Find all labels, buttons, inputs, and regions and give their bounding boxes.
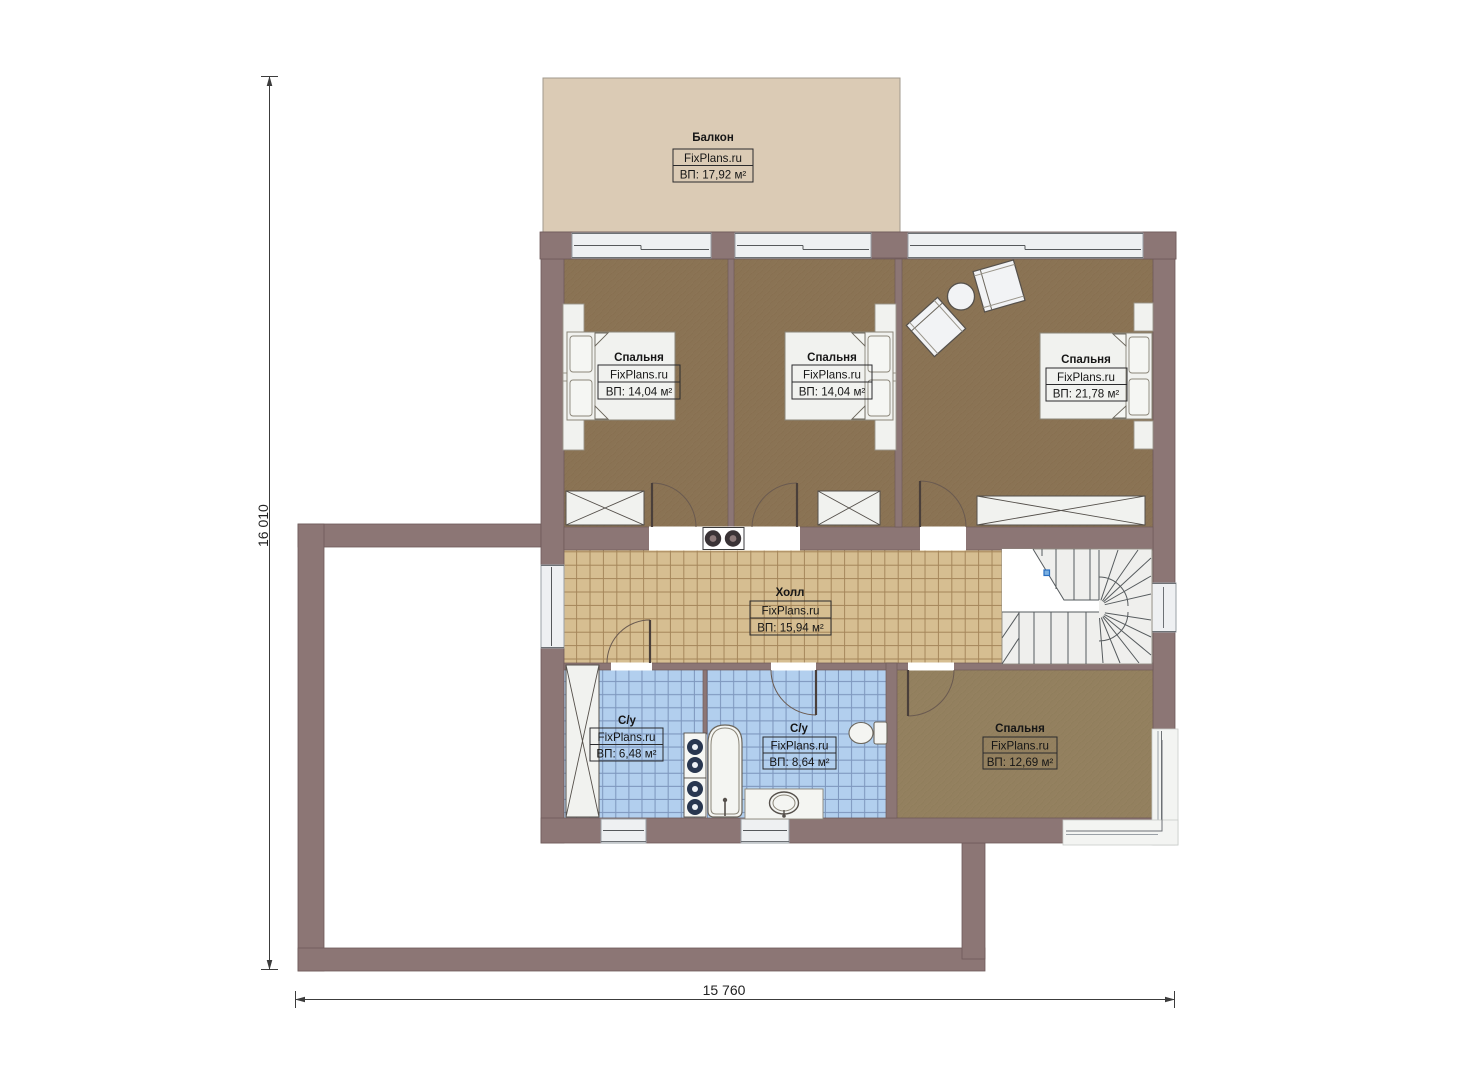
svg-text:FixPlans.ru: FixPlans.ru: [598, 731, 656, 744]
svg-text:ВП: 17,92 м²: ВП: 17,92 м²: [680, 169, 747, 182]
svg-text:ВП: 14,04 м²: ВП: 14,04 м²: [799, 386, 866, 399]
svg-text:Холл: Холл: [776, 587, 805, 599]
svg-text:Спальня: Спальня: [1061, 354, 1111, 366]
svg-text:ВП: 21,78 м²: ВП: 21,78 м²: [1053, 388, 1120, 401]
svg-text:FixPlans.ru: FixPlans.ru: [684, 152, 742, 165]
svg-text:ВП: 14,04 м²: ВП: 14,04 м²: [606, 386, 673, 399]
svg-text:FixPlans.ru: FixPlans.ru: [991, 740, 1049, 753]
svg-text:FixPlans.ru: FixPlans.ru: [1057, 371, 1115, 384]
svg-text:FixPlans.ru: FixPlans.ru: [762, 605, 820, 618]
svg-text:FixPlans.ru: FixPlans.ru: [771, 740, 829, 753]
svg-text:ВП: 8,64 м²: ВП: 8,64 м²: [769, 756, 829, 769]
svg-text:Балкон: Балкон: [692, 132, 734, 144]
svg-text:Спальня: Спальня: [614, 352, 664, 364]
svg-text:Спальня: Спальня: [807, 352, 857, 364]
svg-text:FixPlans.ru: FixPlans.ru: [610, 369, 668, 382]
svg-text:15 760: 15 760: [703, 982, 746, 998]
svg-text:ВП: 15,94 м²: ВП: 15,94 м²: [757, 622, 824, 635]
svg-text:ВП: 12,69 м²: ВП: 12,69 м²: [987, 756, 1054, 769]
svg-text:С/у: С/у: [790, 723, 809, 735]
svg-text:FixPlans.ru: FixPlans.ru: [803, 369, 861, 382]
svg-text:16 010: 16 010: [255, 504, 271, 547]
svg-text:Спальня: Спальня: [995, 723, 1045, 735]
svg-text:ВП: 6,48 м²: ВП: 6,48 м²: [596, 748, 656, 761]
svg-text:С/у: С/у: [618, 715, 637, 727]
